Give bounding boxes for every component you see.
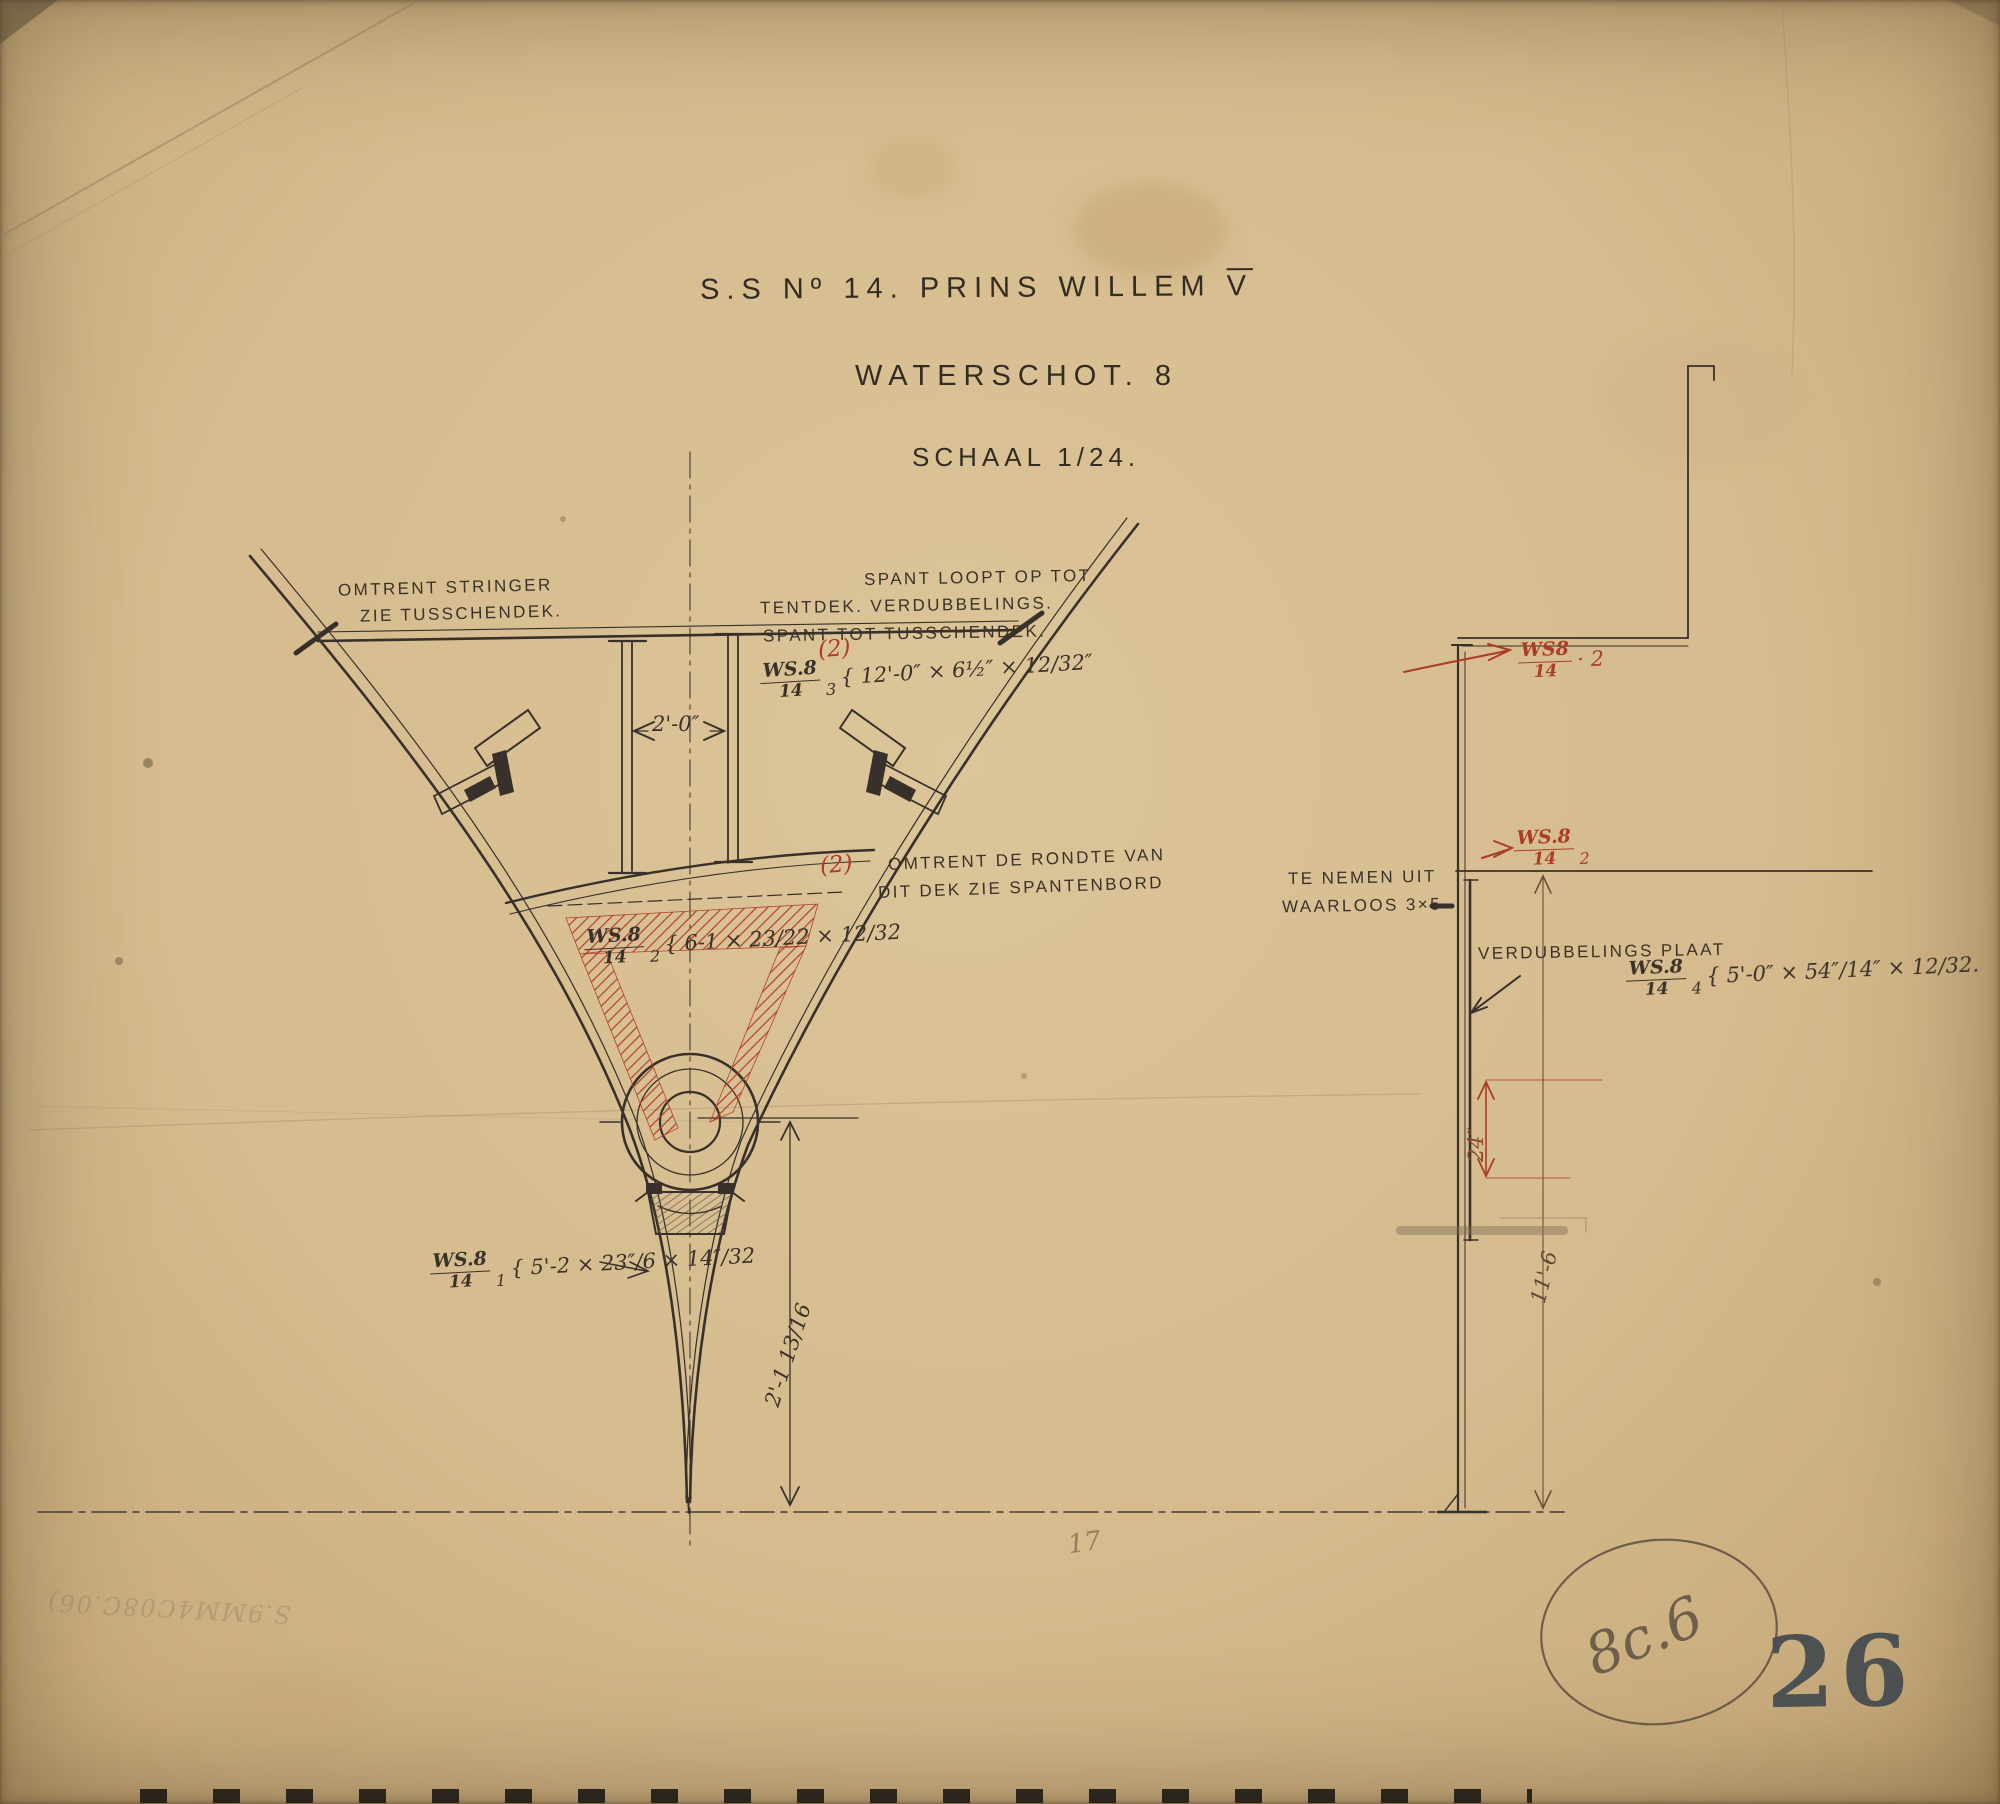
title-text: S.S Nº 14. PRINS WILLEM: [700, 270, 1212, 306]
spec-dimensions: { 12'-0″ × 6½″ × 12/32″: [840, 650, 1094, 689]
spec-suffix: 2: [1579, 848, 1590, 867]
column-left: [622, 641, 632, 872]
roman-numeral: V: [1227, 270, 1254, 302]
red-spec-top: WS814 · 2: [1517, 639, 1604, 683]
title-line-2: WATERSCHOT. 8: [855, 360, 1178, 393]
bracket-left: [475, 710, 540, 766]
bracket-right: [840, 710, 905, 766]
spec-fraction: WS.814: [759, 659, 822, 703]
spec-index: 2: [649, 946, 660, 966]
dim-24-label: 24″: [1464, 1127, 1488, 1162]
red-spec-mid: WS.814 2: [1513, 827, 1590, 870]
spec-suffix: · 2: [1577, 647, 1605, 672]
spec-index: 3: [825, 679, 836, 699]
spec-fraction-bottom: 14: [449, 1272, 474, 1292]
title-line-3: SCHAAL 1/24.: [912, 442, 1140, 473]
spec-dimensions: { 5'-2 × 23″/6 × 14″/32: [510, 1244, 756, 1281]
red-count-mark-lower: (2): [819, 851, 854, 880]
spec-fraction-bottom: 14: [1532, 850, 1556, 870]
spec-fraction: WS.814: [429, 1249, 491, 1293]
scanned-drawing-sheet: S.S Nº 14. PRINS WILLEM V WATERSCHOT. 8 …: [0, 0, 2000, 1804]
spec-fraction: WS.814: [1513, 827, 1575, 870]
spec-fraction-top: WS.8: [1513, 827, 1574, 851]
spec-fraction: WS.814: [1625, 957, 1687, 1000]
spec-fraction-top: WS8: [1517, 640, 1572, 664]
spec-dimensions: { 5'-0″ × 54″/14″ × 12/32.: [1706, 953, 1980, 989]
note-waarloos-line2: WAARLOOS 3×5: [1282, 895, 1442, 918]
drawing-linework: [0, 0, 2000, 1804]
film-sprocket-strip: [140, 1789, 1532, 1803]
column-right: [728, 634, 738, 863]
dim-width-label: 2'-0″: [652, 712, 699, 736]
plate-leader-arrow: [1472, 976, 1520, 1012]
note-spant-line1: SPANT LOOPT OP TOT: [864, 566, 1092, 590]
spec-dimensions: { 6-1 × 23/22 × 12/32: [664, 920, 902, 956]
note-waarloos-line1: TE NEMEN UIT: [1288, 867, 1437, 890]
spec-fraction-top: WS.8: [583, 925, 644, 950]
spec-fraction-bottom: 14: [1644, 980, 1668, 1000]
spec-fraction: WS.814: [583, 925, 645, 969]
spec-fraction-bottom: 14: [603, 948, 628, 968]
spec-fraction-bottom: 14: [779, 682, 804, 702]
spec-fraction-top: WS.8: [1625, 957, 1686, 982]
spec-fraction: WS814: [1517, 640, 1573, 683]
spec-fraction-top: WS.8: [759, 659, 820, 685]
pencil-note: 17: [1066, 1526, 1103, 1560]
sheet-number-stamp: 26: [1765, 1623, 1915, 1724]
spec-index: 4: [1691, 978, 1702, 997]
red-arrow-top: [1404, 651, 1506, 672]
spec-index: 1: [495, 1270, 506, 1290]
spec-fraction-bottom: 14: [1533, 662, 1557, 682]
red-count-mark-upper: (2): [817, 635, 852, 664]
profile-view-linework: [1396, 366, 1872, 1512]
title-line-1: S.S Nº 14. PRINS WILLEM V: [700, 270, 1253, 307]
spec-fraction-top: WS.8: [429, 1249, 490, 1274]
